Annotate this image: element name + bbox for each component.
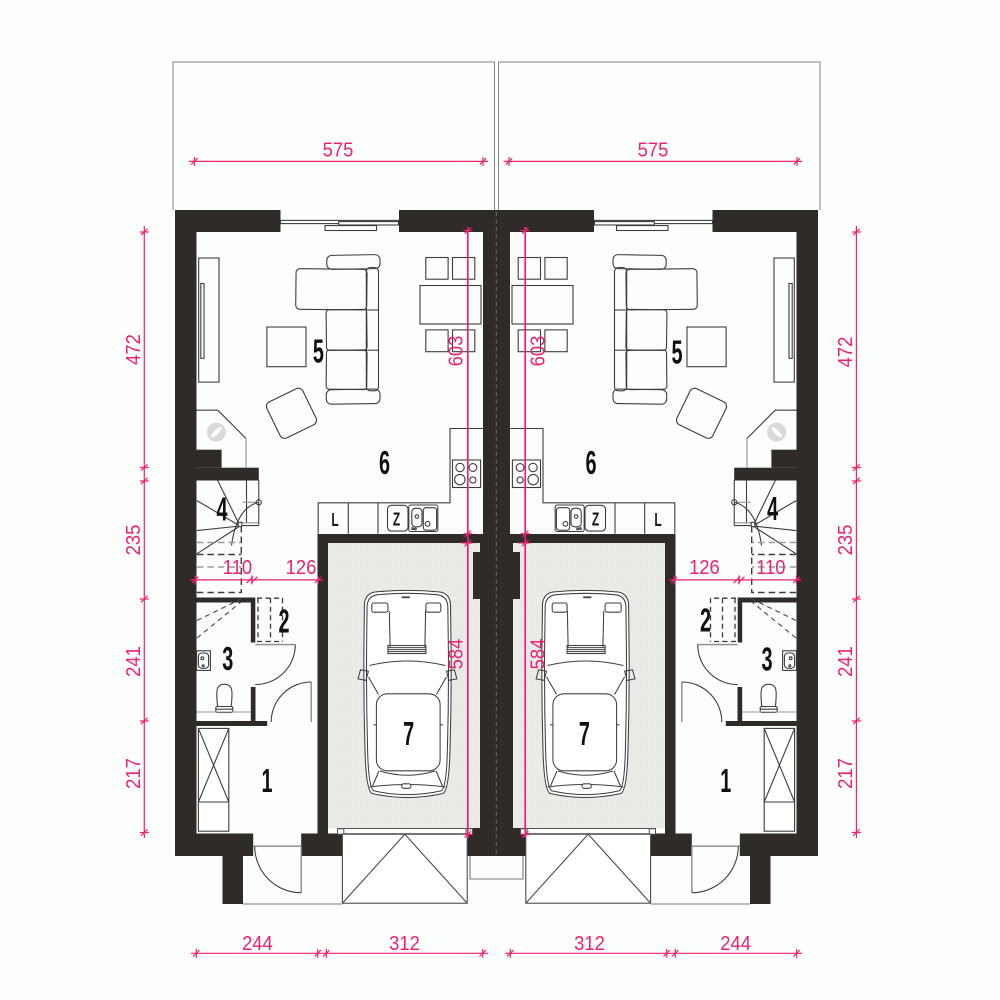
svg-text:244: 244 [242,933,273,955]
svg-text:2: 2 [278,602,289,640]
svg-text:L: L [331,510,339,530]
svg-text:584: 584 [446,638,468,669]
svg-text:4: 4 [216,490,227,528]
svg-text:6: 6 [379,443,390,481]
svg-text:5: 5 [313,332,324,370]
svg-text:472: 472 [835,337,857,368]
svg-text:3: 3 [222,639,233,677]
svg-text:Z: Z [592,510,600,530]
svg-text:110: 110 [223,557,252,579]
svg-text:217: 217 [123,758,145,789]
svg-text:241: 241 [123,646,145,677]
svg-text:217: 217 [835,758,857,789]
svg-text:L: L [654,510,662,530]
svg-text:472: 472 [123,334,145,365]
svg-text:241: 241 [835,646,857,677]
svg-text:5: 5 [671,333,682,371]
svg-text:1: 1 [261,761,272,799]
svg-text:Z: Z [393,510,401,530]
svg-text:603: 603 [528,336,550,367]
svg-text:3: 3 [761,640,772,678]
svg-text:126: 126 [689,557,720,579]
svg-text:4: 4 [767,489,778,527]
svg-text:2: 2 [700,601,711,639]
svg-text:110: 110 [756,557,785,579]
svg-text:603: 603 [446,336,468,367]
svg-text:7: 7 [579,714,590,752]
svg-text:126: 126 [286,557,317,579]
svg-text:7: 7 [403,714,414,752]
svg-text:235: 235 [835,525,857,556]
svg-text:312: 312 [389,933,420,955]
svg-text:312: 312 [574,933,605,955]
svg-text:575: 575 [638,140,669,162]
svg-text:244: 244 [720,933,751,955]
svg-text:575: 575 [323,140,354,162]
svg-text:235: 235 [123,525,145,556]
svg-text:6: 6 [585,443,596,481]
svg-text:1: 1 [720,761,731,799]
svg-text:584: 584 [528,638,550,669]
